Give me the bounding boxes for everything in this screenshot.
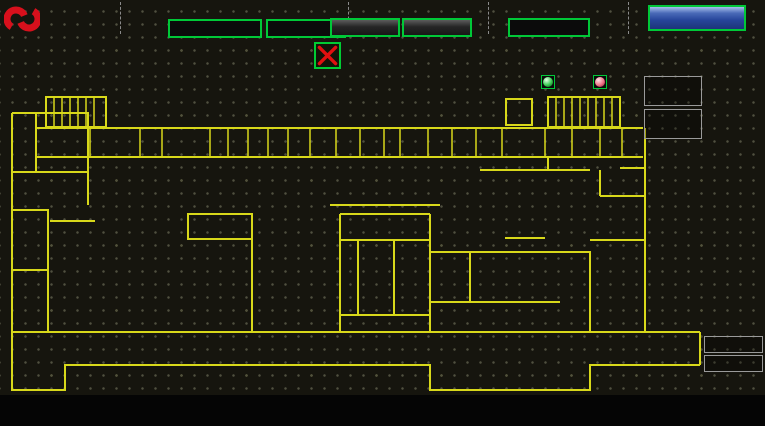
floorplan xyxy=(0,0,765,426)
hmi-screen xyxy=(0,0,765,426)
footer-nav xyxy=(0,395,765,426)
